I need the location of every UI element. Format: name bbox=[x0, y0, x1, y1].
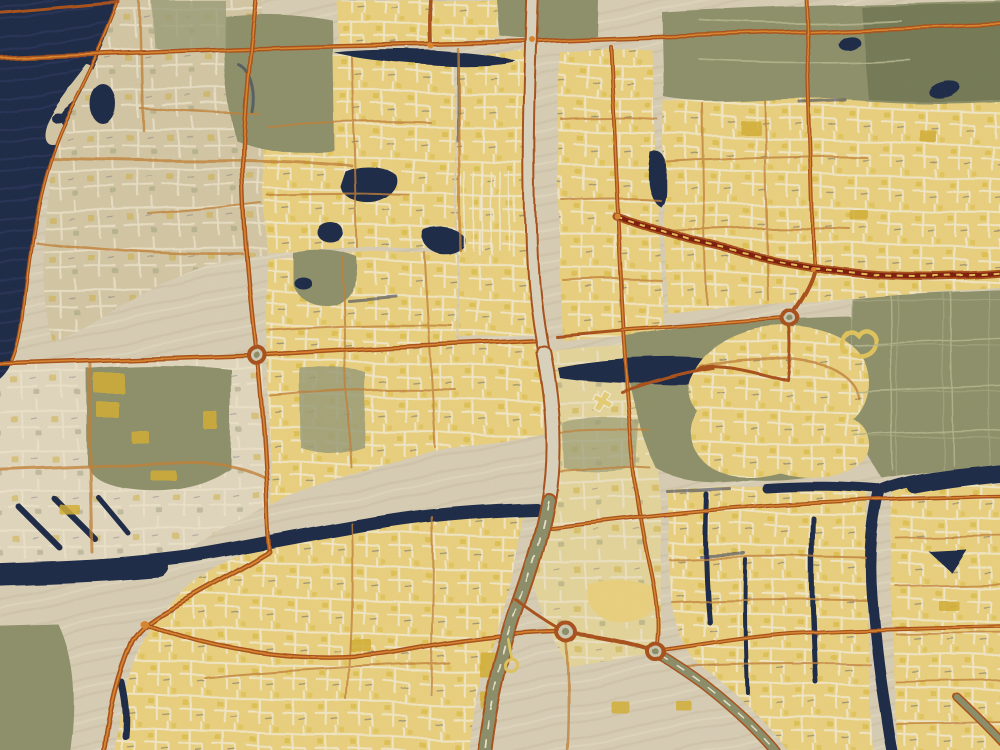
map-artwork bbox=[0, 0, 1000, 750]
paint-grain-overlay bbox=[0, 0, 1000, 750]
map-canvas bbox=[0, 0, 1000, 750]
